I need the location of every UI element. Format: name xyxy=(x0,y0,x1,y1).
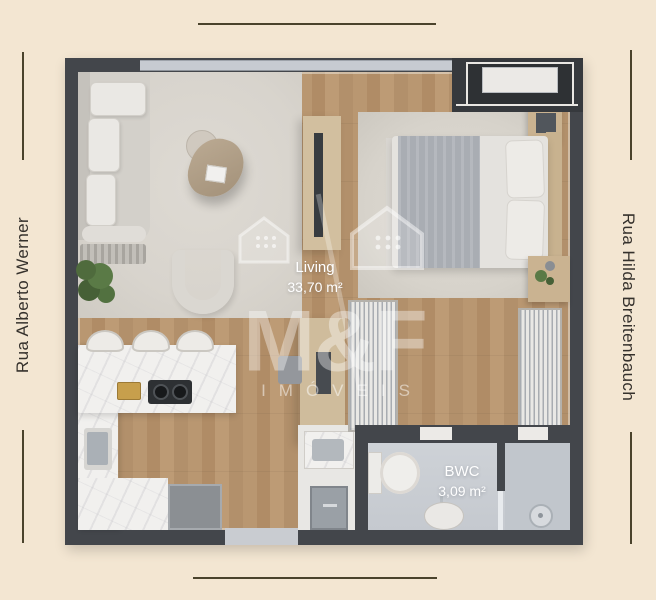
shower-drain xyxy=(538,513,543,518)
bathroom-wall xyxy=(355,425,368,545)
bed-blanket xyxy=(398,136,480,268)
sofa-cushion xyxy=(86,174,116,226)
kitchen-counter-bottom xyxy=(78,478,168,530)
shower-partition xyxy=(497,443,505,491)
bwc-label: BWC 3,09 m² xyxy=(438,462,485,500)
nightstand-item xyxy=(545,261,555,271)
frame-line-top xyxy=(198,23,436,25)
pillow xyxy=(505,199,545,260)
tv-screen xyxy=(314,133,323,237)
shower-glass xyxy=(498,491,503,530)
sink-basin xyxy=(87,432,108,465)
washer-handle xyxy=(323,504,337,507)
nightstand-plant xyxy=(535,270,547,282)
burner xyxy=(153,384,169,400)
plant xyxy=(76,260,96,280)
table-tray xyxy=(205,165,227,184)
frame-line-right-top xyxy=(630,50,632,160)
laundry-basin xyxy=(312,439,344,461)
wardrobe xyxy=(348,300,398,432)
bwc-room-name: BWC xyxy=(438,462,485,482)
armchair xyxy=(172,250,234,314)
burner xyxy=(172,384,188,400)
bathroom-sink xyxy=(424,502,464,530)
floor-plan: Living 33,70 m² BWC 3,09 m² xyxy=(65,58,583,545)
pouf xyxy=(278,356,302,384)
kitchen-sink xyxy=(84,428,112,470)
sofa-armrest xyxy=(82,226,146,242)
refrigerator xyxy=(168,484,222,530)
floor-plan-page: Rua Alberto Werner Rua Hilda Breitenbauc… xyxy=(0,0,656,600)
entry-threshold xyxy=(225,528,298,545)
living-label: Living 33,70 m² xyxy=(287,258,342,296)
living-room-name: Living xyxy=(287,258,342,278)
sofa-cushion xyxy=(90,82,146,116)
living-room-area: 33,70 m² xyxy=(287,278,342,296)
bed-headboard xyxy=(546,132,562,272)
frame-line-bottom xyxy=(193,577,437,579)
washing-machine xyxy=(310,486,348,530)
pillow xyxy=(505,139,545,198)
frame-line-left-top xyxy=(22,52,24,160)
frame-line-left-bottom xyxy=(22,430,24,543)
dresser-front xyxy=(316,352,331,394)
sofa-cushion xyxy=(88,118,120,172)
nightstand-screen xyxy=(536,113,556,133)
cutting-board xyxy=(117,382,141,400)
bathroom-door-opening xyxy=(420,427,452,440)
wardrobe xyxy=(518,308,562,432)
street-label-right: Rua Hilda Breitenbauch xyxy=(618,213,638,401)
ac-niche-sill xyxy=(456,104,578,106)
toilet xyxy=(380,452,420,494)
bwc-room-area: 3,09 m² xyxy=(438,482,485,500)
bathroom-door-opening xyxy=(518,427,548,440)
street-label-left: Rua Alberto Werner xyxy=(13,217,33,373)
frame-line-right-bottom xyxy=(630,432,632,544)
cooktop xyxy=(148,380,192,404)
top-window xyxy=(140,60,452,71)
ac-condenser-unit xyxy=(482,67,558,93)
